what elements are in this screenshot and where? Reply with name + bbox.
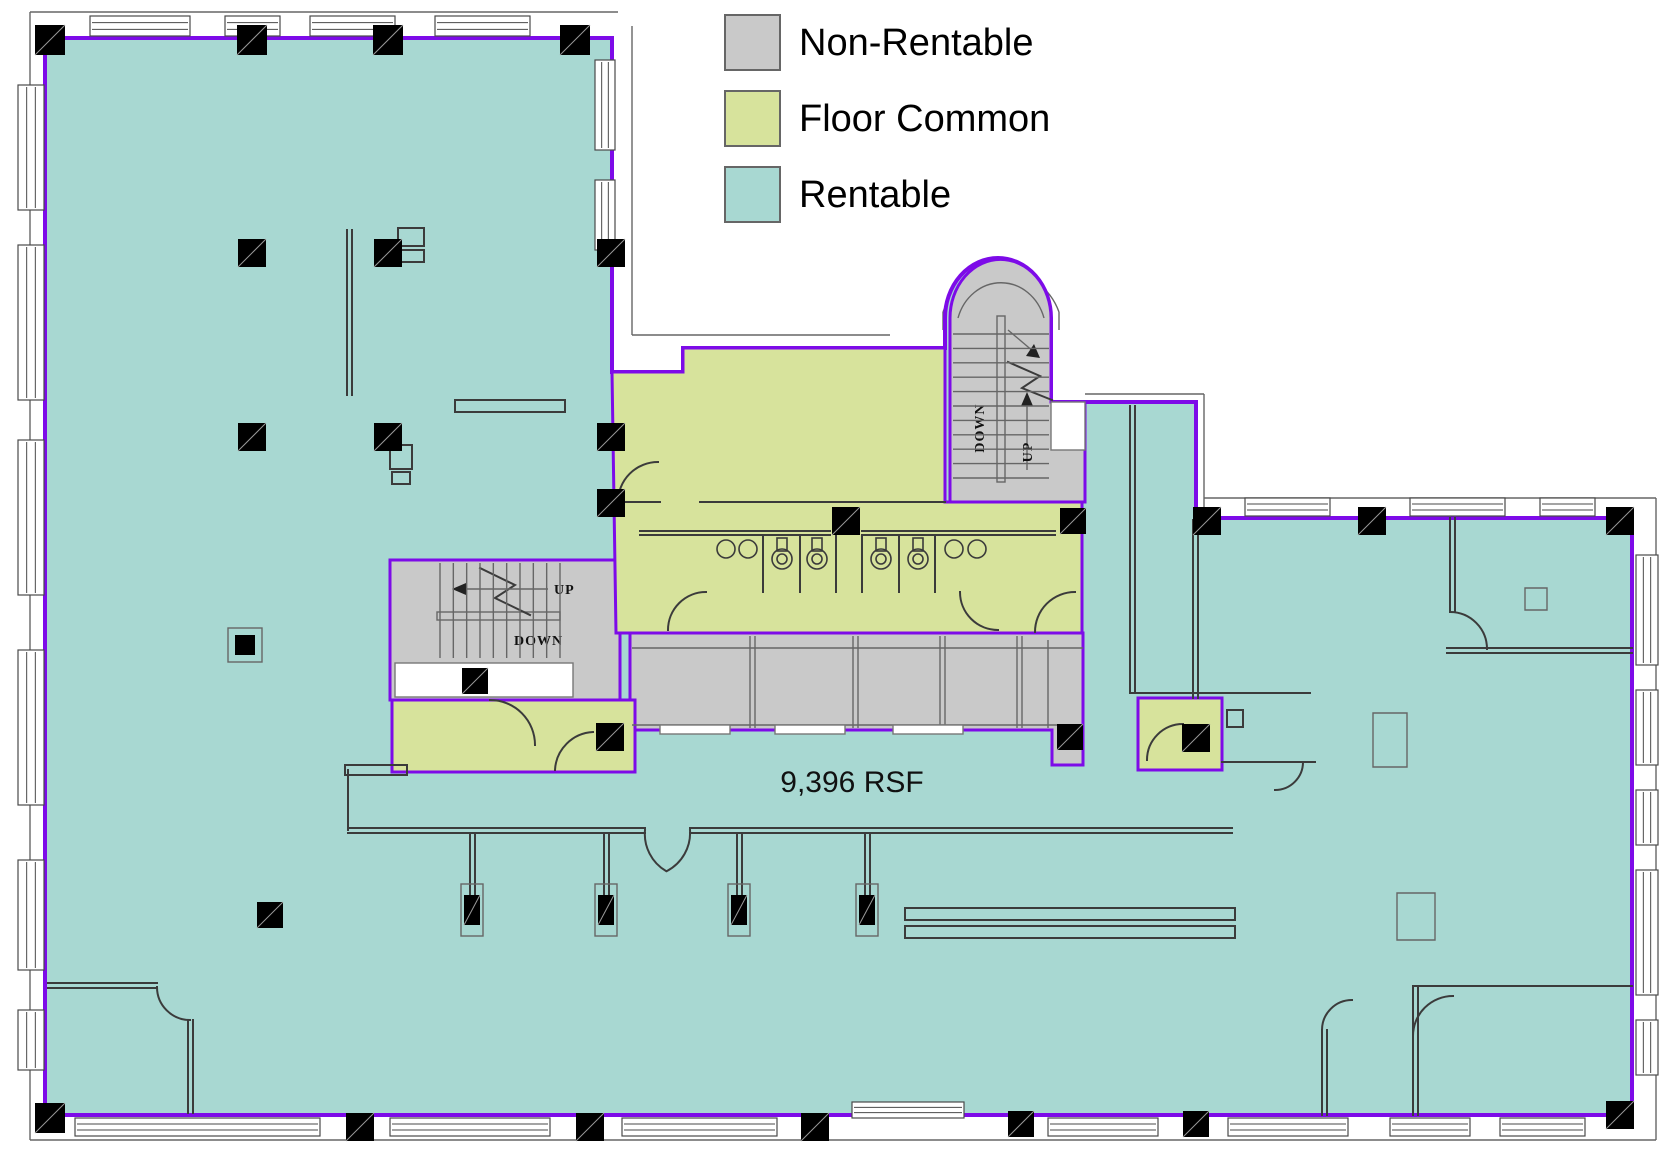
window [18, 860, 44, 970]
window [1636, 555, 1658, 665]
legend: Non-Rentable Floor Common Rentable [724, 14, 1050, 223]
legend-item-non-rentable: Non-Rentable [724, 14, 1050, 71]
window [435, 16, 530, 36]
legend-item-floor-common: Floor Common [724, 90, 1050, 147]
window [18, 1010, 44, 1070]
stair-west-down-label: DOWN [514, 634, 563, 649]
window [1636, 870, 1658, 995]
window [622, 1118, 777, 1136]
stair-north-down-label: DOWN [973, 403, 988, 452]
window [18, 440, 44, 595]
legend-swatch-floor-common [724, 90, 781, 147]
corridor-window-2 [775, 725, 845, 734]
window [18, 85, 44, 210]
window [1410, 498, 1505, 516]
legend-label-non-rentable: Non-Rentable [799, 24, 1033, 62]
stair-north-up-label: UP [1021, 442, 1036, 463]
window [75, 1118, 320, 1136]
window [18, 245, 44, 400]
window [1500, 1118, 1585, 1136]
window [90, 16, 190, 36]
floor-plan-page: UPDOWNDOWNUP9,396 RSF Non-Rentable Floor… [0, 0, 1672, 1171]
window [1390, 1118, 1470, 1136]
window [1228, 1118, 1348, 1136]
window [1636, 790, 1658, 845]
legend-item-rentable: Rentable [724, 166, 1050, 223]
legend-label-rentable: Rentable [799, 176, 951, 214]
window [390, 1118, 550, 1136]
legend-swatch-rentable [724, 166, 781, 223]
window [1636, 690, 1658, 765]
wall-notch [1051, 402, 1085, 450]
window [852, 1102, 964, 1118]
window [18, 650, 44, 805]
column [235, 635, 255, 655]
window [1540, 498, 1595, 516]
legend-label-floor-common: Floor Common [799, 100, 1050, 138]
corridor-window-3 [893, 725, 963, 734]
stair-west-up-label: UP [554, 583, 575, 598]
corridor-window-1 [660, 725, 730, 734]
window [595, 60, 615, 150]
legend-swatch-non-rentable [724, 14, 781, 71]
window [1245, 498, 1330, 516]
window [1048, 1118, 1158, 1136]
window [1636, 1020, 1658, 1075]
rsf-label: 9,396 RSF [780, 766, 923, 799]
